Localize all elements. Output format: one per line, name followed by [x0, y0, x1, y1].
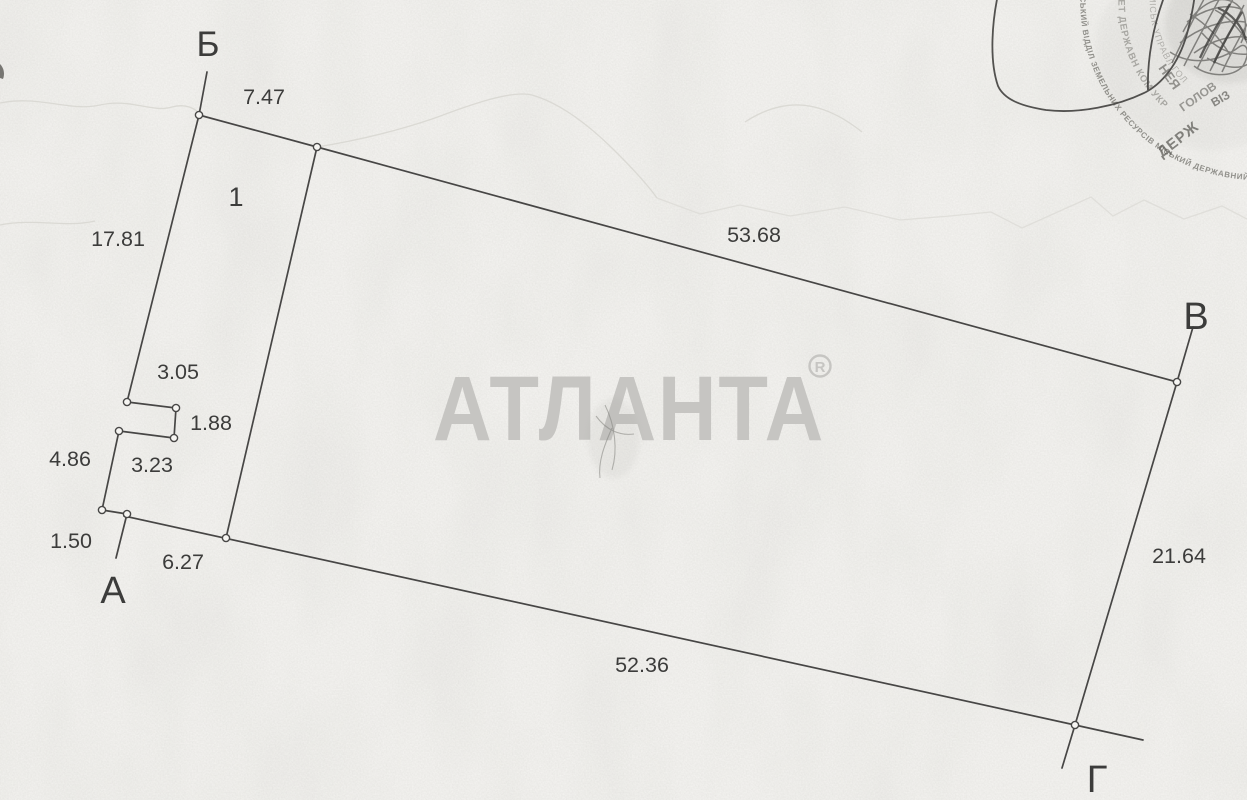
svg-text:В: В — [1183, 296, 1208, 338]
svg-text:1: 1 — [228, 182, 243, 212]
svg-text:6.27: 6.27 — [162, 550, 204, 574]
svg-text:1.88: 1.88 — [190, 411, 232, 435]
svg-text:17.81: 17.81 — [91, 227, 145, 251]
svg-text:3.23: 3.23 — [131, 453, 173, 477]
svg-text:Б: Б — [197, 25, 220, 64]
svg-text:7.47: 7.47 — [243, 85, 285, 109]
svg-text:3.05: 3.05 — [157, 360, 199, 384]
svg-text:53.68: 53.68 — [727, 223, 781, 247]
svg-text:А: А — [100, 570, 126, 612]
svg-text:21.64: 21.64 — [1152, 544, 1206, 568]
svg-text:1.50: 1.50 — [50, 529, 92, 553]
svg-text:Г: Г — [1087, 759, 1108, 800]
svg-text:4.86: 4.86 — [49, 447, 91, 471]
svg-text:52.36: 52.36 — [615, 653, 669, 677]
svg-text:R: R — [815, 359, 826, 376]
